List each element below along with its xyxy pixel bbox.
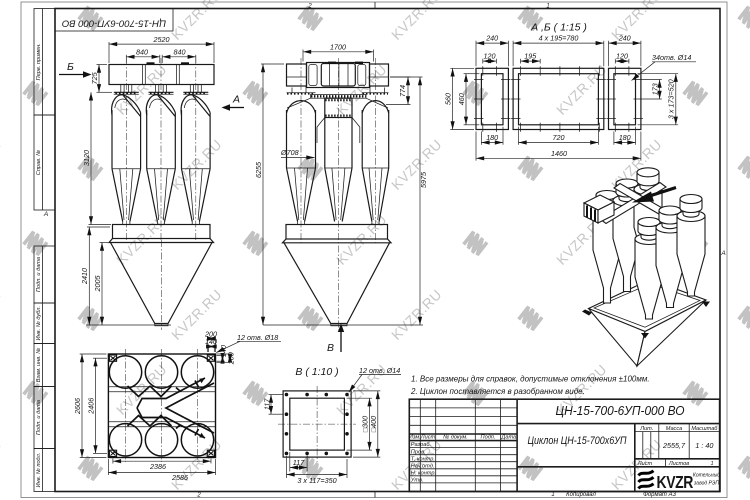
svg-text:Подп. и дата: Подп. и дата [36, 257, 42, 292]
svg-text:Инв. № подл.: Инв. № подл. [36, 453, 42, 488]
svg-text:120: 120 [616, 51, 628, 60]
svg-text:725: 725 [90, 71, 99, 84]
svg-text:Лист: Лист [637, 461, 653, 467]
svg-text:200: 200 [226, 352, 235, 365]
svg-text:Инв. № дубл.: Инв. № дубл. [36, 306, 42, 340]
svg-text:2410: 2410 [80, 268, 89, 285]
svg-text:Н. контр.: Н. контр. [411, 470, 436, 476]
svg-text:240: 240 [618, 34, 631, 43]
svg-text:1460: 1460 [551, 149, 567, 158]
svg-text:840: 840 [174, 47, 186, 56]
svg-text:Перв. примен.: Перв. примен. [36, 43, 42, 80]
svg-text:173: 173 [650, 83, 659, 95]
svg-text:□400: □400 [369, 416, 378, 432]
svg-text:180: 180 [486, 133, 498, 142]
svg-text:2520: 2520 [153, 35, 170, 44]
svg-text:1. Все размеры для справок, до: 1. Все размеры для справок, допустимые о… [411, 375, 650, 384]
svg-text:2555,7: 2555,7 [662, 441, 686, 450]
svg-text:560: 560 [444, 93, 453, 105]
svg-text:Разраб.: Разраб. [411, 442, 431, 448]
svg-text:ЦН-15-700-6УП-000 ВО: ЦН-15-700-6УП-000 ВО [556, 404, 685, 418]
svg-text:Копировал: Копировал [566, 492, 596, 498]
svg-text:120: 120 [484, 51, 496, 60]
svg-text:Листов: Листов [668, 461, 689, 467]
svg-text:Котельный: Котельный [693, 472, 720, 479]
svg-text:Взам. инв. №: Взам. инв. № [36, 348, 42, 383]
svg-text:А: А [43, 211, 48, 218]
svg-text:180: 180 [619, 133, 631, 142]
svg-text:240: 240 [485, 34, 498, 43]
svg-text:Подп.: Подп. [481, 435, 496, 441]
svg-text:Формат А3: Формат А3 [643, 492, 676, 498]
svg-text:Дата: Дата [500, 435, 516, 441]
svg-text:А: А [720, 250, 725, 257]
svg-text:Ø708: Ø708 [280, 148, 299, 157]
svg-text:2406: 2406 [87, 398, 96, 415]
svg-text:4 x 195=780: 4 x 195=780 [539, 34, 579, 43]
svg-text:34отв. Ø14: 34отв. Ø14 [652, 53, 691, 62]
svg-text:460: 460 [457, 93, 466, 105]
svg-text:2005: 2005 [93, 275, 102, 293]
svg-text:117: 117 [262, 398, 271, 410]
svg-text:Циклон ЦН-15-700х6УП: Циклон ЦН-15-700х6УП [528, 435, 627, 447]
svg-text:Т. контр.: Т. контр. [411, 456, 435, 462]
svg-text:2. Циклон поставляется в разоб: 2. Циклон поставляется в разобранном вид… [410, 387, 585, 396]
svg-text:Лит.: Лит. [639, 426, 653, 432]
svg-text:140: 140 [205, 337, 217, 346]
svg-text:2386: 2386 [149, 462, 166, 471]
svg-text:117: 117 [293, 458, 305, 467]
svg-text:6255: 6255 [254, 161, 263, 178]
svg-text:3120: 3120 [82, 150, 91, 166]
svg-text:А ,Б ( 1:15 ): А ,Б ( 1:15 ) [530, 22, 587, 34]
svg-text:Масса: Масса [666, 426, 683, 432]
svg-text:Утв.: Утв. [410, 478, 424, 484]
svg-text:завод РЭП: завод РЭП [693, 481, 719, 487]
svg-text:840: 840 [136, 47, 148, 56]
svg-text:В ( 1:10 ): В ( 1:10 ) [295, 366, 338, 378]
svg-text:Лист: Лист [420, 435, 436, 441]
svg-text:Изм.: Изм. [409, 435, 421, 441]
svg-text:2606: 2606 [73, 398, 82, 415]
svg-text:А: А [232, 94, 240, 106]
svg-text:Масштаб: Масштаб [691, 426, 718, 432]
svg-text:В: В [327, 342, 334, 354]
svg-text:Пров.: Пров. [411, 449, 426, 455]
svg-text:№ докум.: № докум. [443, 435, 468, 441]
svg-text:3 x 173=520: 3 x 173=520 [667, 79, 676, 119]
svg-text:2: 2 [196, 492, 201, 498]
svg-text:195: 195 [524, 51, 537, 60]
svg-text:Подп. и дата: Подп. и дата [36, 400, 42, 435]
svg-text:1700: 1700 [330, 42, 346, 51]
svg-text:3 x 117=350: 3 x 117=350 [297, 476, 336, 485]
svg-text:1: 1 [551, 492, 554, 498]
svg-text:2586: 2586 [171, 473, 188, 482]
svg-text:5975: 5975 [419, 171, 428, 188]
svg-text:Нач.отд.: Нач.отд. [411, 463, 435, 469]
svg-text:Б: Б [67, 61, 74, 73]
svg-text:720: 720 [553, 133, 565, 142]
svg-text:KVZR: KVZR [657, 472, 694, 492]
svg-text:1: 1 [710, 461, 713, 467]
svg-text:Справ. №: Справ. № [36, 150, 42, 175]
svg-text:12 отв. Ø18: 12 отв. Ø18 [237, 333, 278, 342]
svg-text:774: 774 [398, 85, 407, 97]
svg-text:ЦН-15-700-6УП-000 ВО: ЦН-15-700-6УП-000 ВО [61, 18, 166, 29]
svg-text:12 отв. Ø14: 12 отв. Ø14 [359, 366, 400, 375]
svg-text:1 : 40: 1 : 40 [695, 441, 713, 450]
